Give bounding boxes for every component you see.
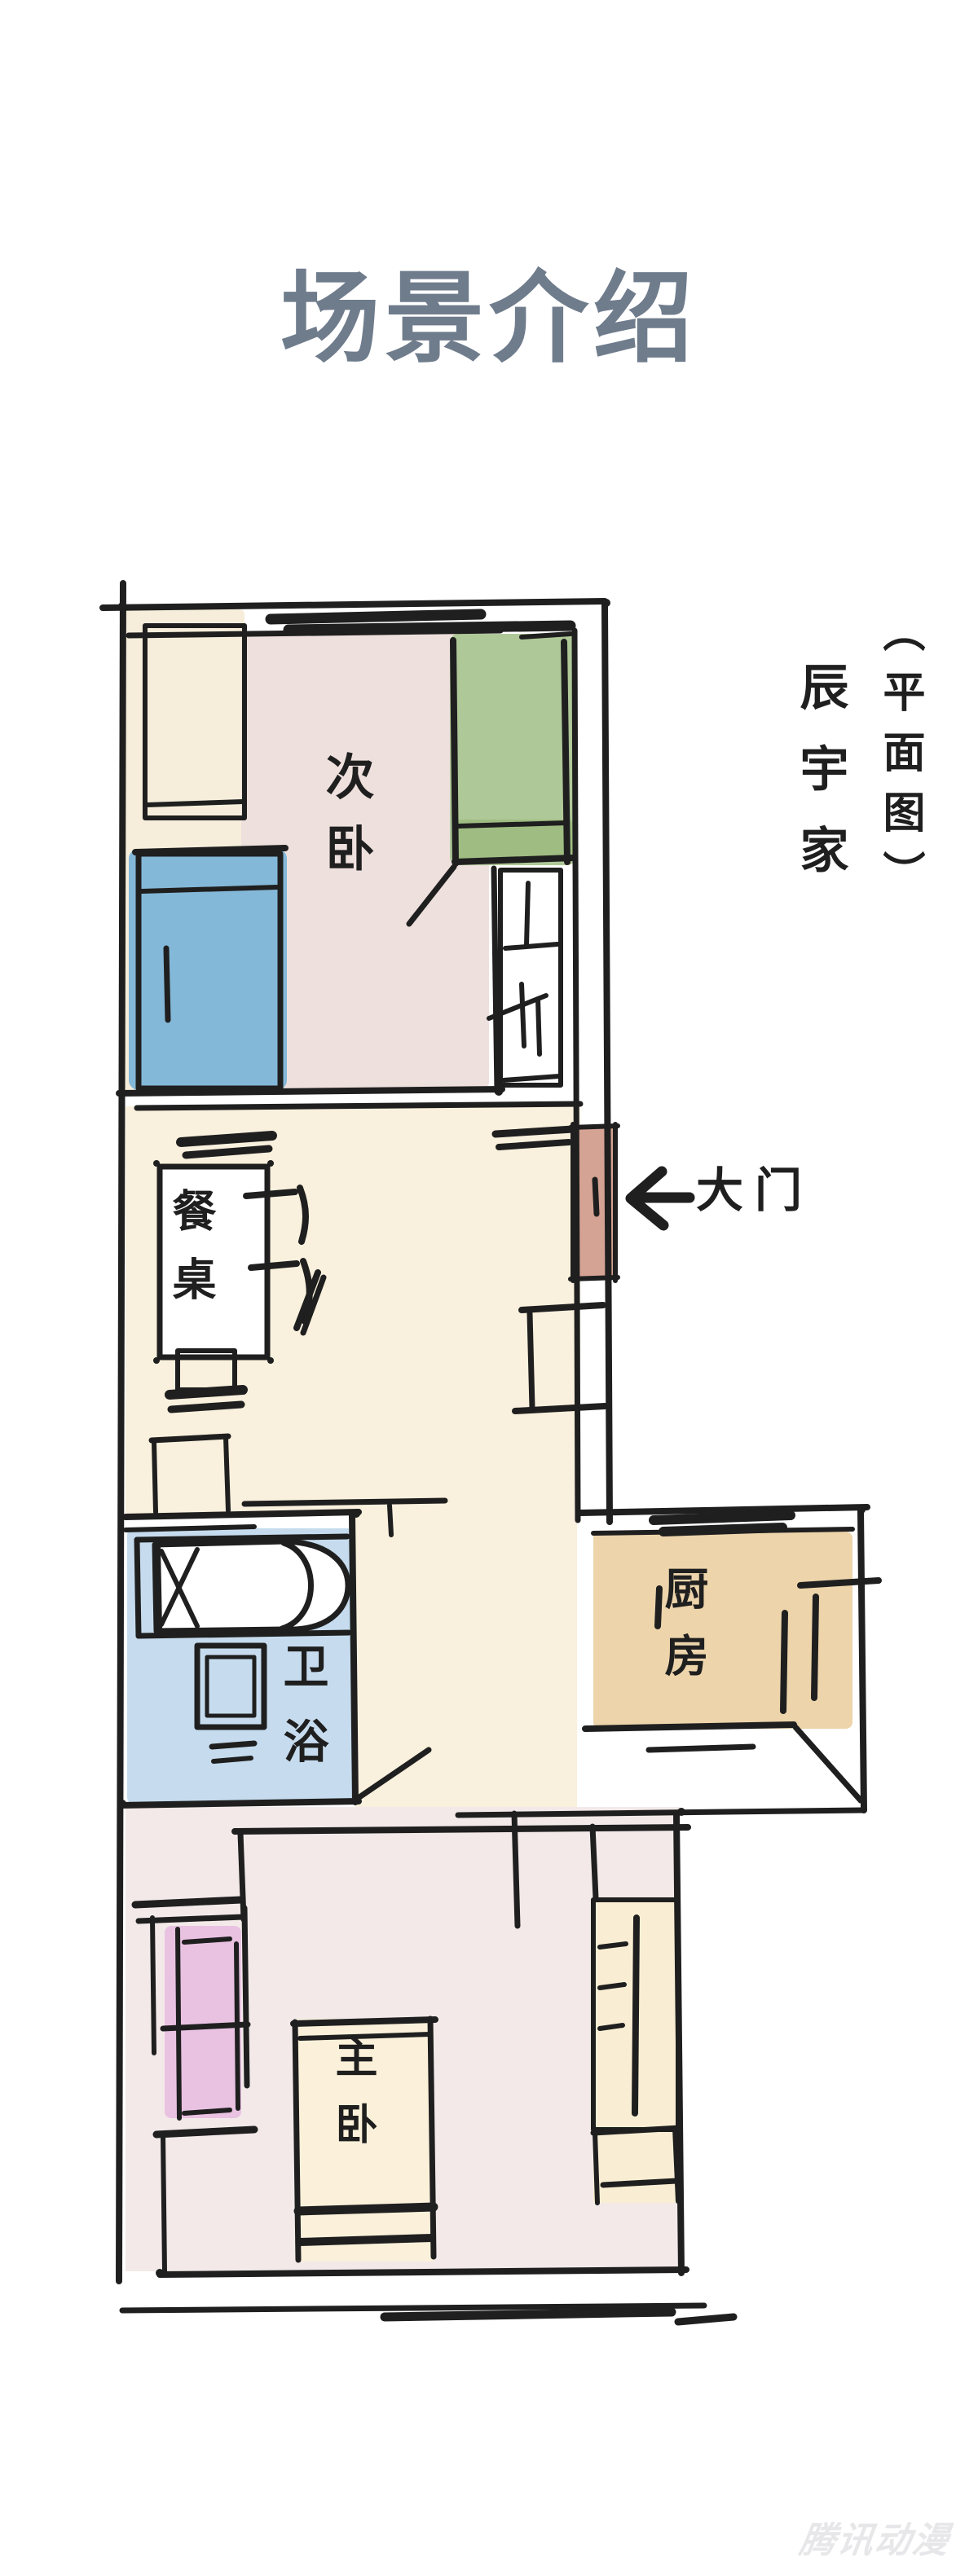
kitchen-door-swing (795, 1727, 861, 1800)
wall-right-upper-outer (605, 604, 610, 1522)
wall-bottom-overdraw (385, 2312, 672, 2317)
wall-bottom-right-tick (678, 2317, 733, 2322)
window-bar-secondary-a (271, 614, 481, 619)
door-arrow-icon (631, 1172, 689, 1225)
kitchen-label: 厨房 (660, 1566, 704, 1699)
wall-bathroom-bottom (121, 1801, 359, 1805)
wall-bathroom-right (352, 1515, 355, 1802)
wall-entry-divider (494, 868, 497, 1092)
corridor-door-stub (390, 1506, 391, 1535)
wall-kitchen-bottom-a (585, 1725, 794, 1729)
wall-bathroom-top-overdraw (244, 1501, 445, 1504)
dining-table-label: 餐桌 (168, 1188, 212, 1325)
wall-master-top-b (235, 1827, 688, 1831)
window-bar-secondary-b (289, 626, 570, 630)
window-bar-kitchen-b (663, 1528, 782, 1532)
wall-right-upper-inner (575, 631, 578, 1520)
wall-left-outer (119, 583, 123, 2281)
window-bar-kitchen-a (654, 1515, 791, 1520)
caption-home-name: 辰宇家 (795, 662, 844, 906)
bathroom-label: 卫浴 (279, 1642, 324, 1792)
page-title: 场景介绍 (0, 238, 978, 382)
secondary-bedroom-label: 次卧 (321, 751, 370, 895)
blue-bed-fill (129, 849, 287, 1090)
comic-page: 场景介绍 （平面图） 辰宇家 次卧 餐桌 卫浴 厨房 主卧 大门 腾讯动漫 (0, 0, 978, 2576)
master-bedroom-label: 主卧 (331, 2035, 373, 2169)
watermark: 腾讯动漫 (797, 2511, 954, 2563)
wall-top-outer (103, 601, 605, 608)
caption-plan-type: （平面图） (879, 609, 921, 911)
wall-bathroom-top-b (126, 1527, 254, 1530)
wall-kitchen-bottom-b (649, 1747, 753, 1750)
wall-kitchen-top-a (580, 1507, 867, 1513)
wall-master-stub-mid (514, 1813, 518, 1926)
wall-kitchen-right (861, 1510, 864, 1810)
corridor-floor (355, 1514, 577, 1831)
wall-secondary-bottom-b (137, 1104, 580, 1108)
bathtub (137, 1536, 349, 1636)
main-door-label: 大门 (696, 1167, 813, 1214)
entry-shoe-shelf (489, 870, 561, 1085)
floorplan-drawing (0, 0, 978, 2576)
